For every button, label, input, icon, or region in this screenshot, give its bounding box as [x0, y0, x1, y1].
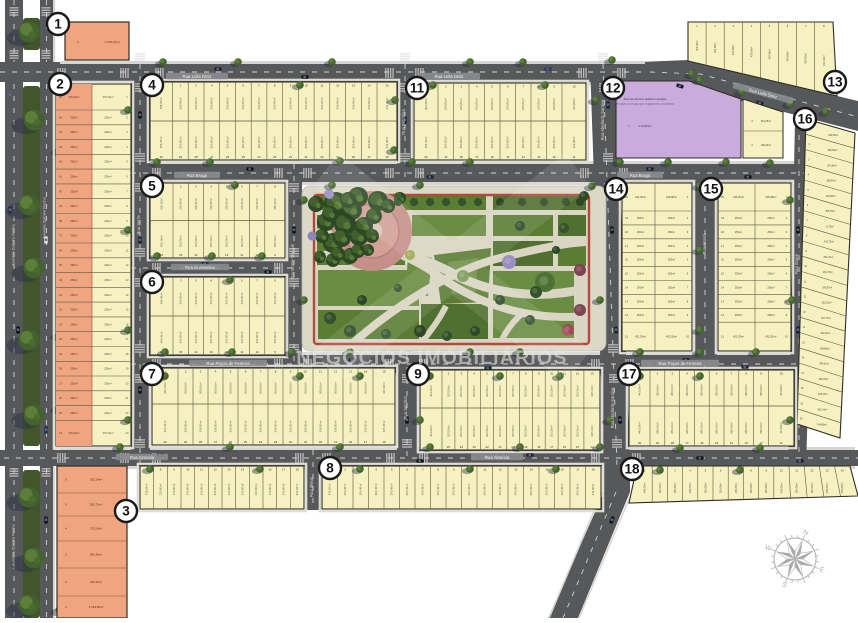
svg-text:200m²: 200m² — [104, 145, 111, 149]
svg-text:744,86m²: 744,86m² — [817, 424, 827, 427]
svg-text:250m²: 250m² — [637, 272, 644, 276]
svg-text:200,81m²: 200,81m² — [490, 98, 494, 110]
svg-text:200,00m²: 200,00m² — [194, 98, 198, 110]
svg-text:Rua Serra: Rua Serra — [136, 215, 141, 235]
svg-text:405,00m²: 405,00m² — [273, 198, 277, 210]
svg-text:200m²: 200m² — [104, 248, 111, 252]
svg-text:17: 17 — [475, 155, 479, 159]
svg-text:24: 24 — [257, 155, 261, 159]
svg-text:Rua Almeida: Rua Almeida — [485, 455, 510, 460]
svg-text:13: 13 — [537, 155, 541, 159]
svg-text:452,92m²: 452,92m² — [766, 335, 777, 339]
svg-text:300,45m²: 300,45m² — [529, 484, 533, 496]
svg-text:202,50m²: 202,50m² — [194, 235, 198, 247]
svg-text:Avenida Zulmira Rocha: Avenida Zulmira Rocha — [42, 196, 47, 238]
svg-text:250m²: 250m² — [735, 230, 742, 234]
svg-text:13: 13 — [590, 371, 594, 375]
svg-text:409,98m²: 409,98m² — [769, 49, 772, 60]
svg-text:208,00m²: 208,00m² — [198, 421, 202, 433]
svg-text:250m²: 250m² — [70, 396, 77, 400]
svg-text:208,00m²: 208,00m² — [198, 382, 202, 394]
svg-text:202,50m²: 202,50m² — [575, 385, 579, 397]
svg-text:310,80m²: 310,80m² — [254, 484, 258, 496]
svg-text:250m²: 250m² — [70, 204, 77, 208]
svg-text:251,73m²: 251,73m² — [824, 256, 834, 259]
svg-text:250m²: 250m² — [767, 285, 774, 289]
svg-text:250m²: 250m² — [70, 337, 77, 341]
svg-text:250m²: 250m² — [767, 216, 774, 220]
svg-text:208,00m²: 208,00m² — [333, 382, 337, 394]
svg-text:405,00m²: 405,00m² — [273, 332, 277, 344]
svg-text:200,00m²: 200,00m² — [273, 137, 277, 149]
svg-text:200,00m²: 200,00m² — [304, 137, 308, 149]
svg-text:202,50m²: 202,50m² — [225, 332, 229, 344]
svg-text:200m²: 200m² — [104, 234, 111, 238]
svg-text:250m²: 250m² — [70, 411, 77, 415]
svg-text:17: 17 — [685, 441, 689, 445]
svg-text:436,85m²: 436,85m² — [735, 483, 738, 494]
svg-text:15: 15 — [576, 445, 580, 449]
svg-text:250m²: 250m² — [70, 352, 77, 356]
svg-text:265,68m²: 265,68m² — [811, 483, 814, 494]
svg-text:310,80m²: 310,80m² — [268, 484, 272, 496]
svg-text:200,00m²: 200,00m² — [178, 98, 182, 110]
svg-text:250m²: 250m² — [70, 308, 77, 312]
svg-text:409,98m²: 409,98m² — [750, 46, 753, 57]
svg-text:409,98m²: 409,98m² — [787, 51, 790, 62]
svg-text:250m²: 250m² — [668, 258, 675, 262]
svg-text:200,81m²: 200,81m² — [490, 137, 494, 149]
svg-text:262,21m²: 262,21m² — [822, 302, 832, 305]
svg-text:436,85m²: 436,85m² — [780, 483, 783, 494]
svg-text:202,50m²: 202,50m² — [537, 385, 541, 397]
svg-text:300,45m²: 300,45m² — [452, 484, 456, 496]
svg-text:409,98m²: 409,98m² — [732, 44, 735, 55]
svg-text:Rua Paços de Ferreira: Rua Paços de Ferreira — [658, 361, 702, 366]
svg-text:208,00m²: 208,00m² — [288, 421, 292, 433]
svg-text:280,00m²: 280,00m² — [700, 384, 704, 396]
svg-text:433,68m²: 433,68m² — [766, 195, 777, 199]
svg-text:262,16m²: 262,16m² — [821, 332, 831, 335]
svg-text:443,69m²: 443,69m² — [637, 384, 641, 396]
svg-text:436,85m²: 436,85m² — [689, 483, 692, 494]
svg-text:250m²: 250m² — [767, 272, 774, 276]
svg-text:250m²: 250m² — [767, 299, 774, 303]
svg-text:17: 17 — [576, 467, 580, 471]
svg-text:310,80m²: 310,80m² — [172, 484, 176, 496]
svg-text:300,45m²: 300,45m² — [560, 484, 564, 496]
svg-text:404,46m²: 404,46m² — [424, 98, 428, 110]
svg-text:15: 15 — [385, 83, 389, 87]
svg-text:202,50m²: 202,50m² — [225, 198, 229, 210]
svg-text:Avenida Zulmira Rocha: Avenida Zulmira Rocha — [11, 523, 16, 565]
svg-text:1.170m²: 1.170m² — [825, 225, 834, 228]
svg-text:202,50m²: 202,50m² — [459, 425, 463, 437]
svg-text:200,81m²: 200,81m² — [537, 98, 541, 110]
svg-text:3: 3 — [122, 504, 130, 519]
svg-text:29: 29 — [184, 440, 188, 444]
svg-text:250m²: 250m² — [735, 299, 742, 303]
svg-text:250m²: 250m² — [70, 115, 77, 119]
svg-text:202,50m²: 202,50m² — [550, 425, 554, 437]
svg-text:280,00m²: 280,00m² — [744, 384, 748, 396]
svg-text:2: 2 — [56, 77, 64, 92]
svg-text:10: 10 — [780, 469, 783, 473]
svg-text:300,45m²: 300,45m² — [359, 484, 363, 496]
svg-text:1: 1 — [54, 17, 62, 32]
svg-text:Avenida Zulmira Rocha: Avenida Zulmira Rocha — [11, 223, 16, 265]
svg-text:421,88m²: 421,88m² — [779, 384, 783, 396]
svg-text:14: 14 — [841, 469, 844, 473]
svg-text:247,77m²: 247,77m² — [821, 317, 831, 320]
svg-text:200m²: 200m² — [104, 308, 111, 312]
svg-text:404,46m²: 404,46m² — [429, 425, 433, 437]
svg-text:433,68m²: 433,68m² — [666, 195, 677, 199]
svg-text:202,50m²: 202,50m² — [240, 235, 244, 247]
svg-text:14: 14 — [608, 182, 624, 197]
svg-text:280,00m²: 280,00m² — [715, 384, 719, 396]
svg-text:250m²: 250m² — [70, 248, 77, 252]
svg-text:16: 16 — [382, 440, 386, 444]
svg-text:250m²: 250m² — [668, 299, 675, 303]
svg-text:26: 26 — [226, 155, 230, 159]
svg-text:288,97m²: 288,97m² — [827, 180, 837, 183]
svg-text:1.163,89m²: 1.163,89m² — [89, 605, 104, 609]
svg-text:19: 19 — [656, 441, 660, 445]
svg-text:200,00m²: 200,00m² — [367, 98, 371, 110]
svg-text:300,45m²: 300,45m² — [498, 484, 502, 496]
svg-text:291,08m²: 291,08m² — [828, 134, 838, 137]
svg-text:13: 13 — [827, 75, 843, 90]
svg-text:20: 20 — [424, 155, 428, 159]
svg-text:300,45m²: 300,45m² — [421, 484, 425, 496]
svg-text:202,50m²: 202,50m² — [255, 332, 259, 344]
svg-text:Rua Monte Mor Ipê: Rua Monte Mor Ipê — [290, 243, 295, 280]
svg-text:300,45m²: 300,45m² — [467, 484, 471, 496]
svg-text:200m²: 200m² — [104, 175, 111, 179]
svg-text:532,14m²: 532,14m² — [90, 478, 102, 482]
svg-text:250m²: 250m² — [668, 244, 675, 248]
svg-text:Rua Soure: Rua Soure — [794, 253, 799, 274]
svg-text:200,00m²: 200,00m² — [320, 137, 324, 149]
svg-text:250m²: 250m² — [637, 244, 644, 248]
svg-text:12: 12 — [605, 81, 620, 96]
svg-text:261,14m²: 261,14m² — [818, 408, 828, 411]
svg-text:18: 18 — [537, 445, 541, 449]
svg-text:208,00m²: 208,00m² — [363, 421, 367, 433]
svg-text:10: 10 — [304, 369, 308, 373]
svg-text:250m²: 250m² — [637, 258, 644, 262]
svg-text:409,98m²: 409,98m² — [805, 53, 808, 64]
svg-text:5: 5 — [148, 179, 156, 194]
svg-text:300,45m²: 300,45m² — [436, 484, 440, 496]
svg-text:202,50m²: 202,50m² — [511, 385, 515, 397]
svg-text:200,81m²: 200,81m² — [521, 137, 525, 149]
svg-text:200,00m²: 200,00m² — [367, 137, 371, 149]
svg-text:280,00m²: 280,00m² — [759, 422, 763, 434]
svg-text:434,25m²: 434,25m² — [733, 195, 744, 199]
svg-text:4: 4 — [148, 78, 156, 93]
svg-text:208,00m²: 208,00m² — [273, 421, 277, 433]
svg-text:14: 14 — [730, 441, 734, 445]
svg-text:202,50m²: 202,50m² — [209, 198, 213, 210]
svg-text:260,97m²: 260,97m² — [819, 378, 829, 381]
svg-text:16: 16 — [700, 441, 704, 445]
svg-text:243,87m²: 243,87m² — [822, 286, 832, 289]
svg-text:200m²: 200m² — [104, 263, 111, 267]
svg-text:29: 29 — [179, 155, 183, 159]
svg-text:18: 18 — [460, 155, 464, 159]
svg-text:16: 16 — [563, 445, 567, 449]
svg-text:200,81m²: 200,81m² — [444, 137, 448, 149]
svg-text:202,50m²: 202,50m² — [485, 385, 489, 397]
svg-text:200,00m²: 200,00m² — [273, 98, 277, 110]
svg-text:8: 8 — [326, 461, 334, 476]
svg-text:300,45m²: 300,45m² — [514, 484, 518, 496]
svg-text:200m²: 200m² — [104, 293, 111, 297]
svg-text:280,00m²: 280,00m² — [715, 422, 719, 434]
svg-text:202,50m²: 202,50m² — [209, 293, 213, 305]
svg-text:200,81m²: 200,81m² — [459, 98, 463, 110]
svg-text:11: 11 — [483, 467, 486, 471]
svg-text:250m²: 250m² — [70, 175, 77, 179]
svg-text:208,00m²: 208,00m² — [303, 421, 307, 433]
svg-text:208,00m²: 208,00m² — [213, 421, 217, 433]
svg-text:25: 25 — [242, 155, 246, 159]
svg-text:23: 23 — [274, 440, 278, 444]
svg-text:202,50m²: 202,50m² — [240, 198, 244, 210]
svg-text:202,50m²: 202,50m² — [240, 293, 244, 305]
svg-text:14: 14 — [194, 350, 198, 354]
svg-text:14: 14 — [364, 369, 368, 373]
svg-text:250m²: 250m² — [735, 313, 742, 317]
svg-text:265,68m²: 265,68m² — [750, 483, 753, 494]
svg-text:200,00m²: 200,00m² — [241, 137, 245, 149]
svg-text:443,69m²: 443,69m² — [637, 422, 641, 434]
svg-text:421,53m²: 421,53m² — [733, 335, 744, 339]
svg-text:22: 22 — [485, 445, 489, 449]
svg-text:200,00m²: 200,00m² — [210, 98, 214, 110]
svg-text:300,45m²: 300,45m² — [374, 484, 378, 496]
svg-text:200,00m²: 200,00m² — [226, 137, 230, 149]
svg-text:280,00m²: 280,00m² — [685, 422, 689, 434]
svg-text:310,80m²: 310,80m² — [281, 484, 285, 496]
svg-text:1.248,44m²: 1.248,44m² — [104, 40, 119, 44]
svg-text:202,50m²: 202,50m² — [537, 425, 541, 437]
svg-text:458,78m²: 458,78m² — [159, 98, 163, 110]
svg-text:286,65m²: 286,65m² — [828, 149, 838, 152]
svg-text:200,81m²: 200,81m² — [444, 98, 448, 110]
svg-text:200m²: 200m² — [104, 115, 111, 119]
svg-text:266,86m²: 266,86m² — [820, 347, 830, 350]
svg-text:12: 12 — [336, 83, 340, 87]
svg-text:Rua Braga: Rua Braga — [630, 173, 651, 178]
svg-text:208,00m²: 208,00m² — [318, 382, 322, 394]
svg-text:200m²: 200m² — [104, 130, 111, 134]
svg-text:11: 11 — [572, 155, 575, 159]
svg-text:30: 30 — [163, 440, 167, 444]
svg-text:16: 16 — [268, 467, 272, 471]
svg-text:208,00m²: 208,00m² — [348, 421, 352, 433]
svg-text:24: 24 — [259, 440, 263, 444]
svg-text:202,50m²: 202,50m² — [240, 332, 244, 344]
svg-text:202,50m²: 202,50m² — [524, 425, 528, 437]
svg-text:208,00m²: 208,00m² — [348, 382, 352, 394]
svg-text:200,00m²: 200,00m² — [178, 137, 182, 149]
svg-text:11: 11 — [780, 441, 783, 445]
svg-text:404,46m²: 404,46m² — [429, 385, 433, 397]
svg-text:200m²: 200m² — [104, 219, 111, 223]
svg-text:25: 25 — [447, 445, 451, 449]
svg-text:312,65m²: 312,65m² — [295, 484, 299, 496]
svg-text:250m²: 250m² — [637, 230, 644, 234]
svg-text:410,44m²: 410,44m² — [163, 382, 167, 394]
svg-text:22: 22 — [289, 155, 293, 159]
svg-text:19: 19 — [524, 445, 528, 449]
svg-text:16: 16 — [385, 155, 389, 159]
svg-text:414,88m²: 414,88m² — [572, 137, 576, 149]
svg-text:12: 12 — [499, 467, 503, 471]
svg-text:265,68m²: 265,68m² — [841, 483, 844, 494]
svg-text:300,45m²: 300,45m² — [576, 484, 580, 496]
svg-text:208,00m²: 208,00m² — [243, 382, 247, 394]
svg-text:24: 24 — [460, 445, 464, 449]
svg-text:202,50m²: 202,50m² — [575, 425, 579, 437]
svg-text:208,00m²: 208,00m² — [258, 421, 262, 433]
svg-text:375,26m²: 375,26m² — [90, 527, 102, 531]
svg-text:Rua Leila Diniz: Rua Leila Diniz — [183, 74, 212, 79]
svg-text:208,00m²: 208,00m² — [228, 382, 232, 394]
svg-text:250m²: 250m² — [70, 219, 77, 223]
svg-text:202,50m²: 202,50m² — [550, 385, 554, 397]
svg-text:561,35m²: 561,35m² — [761, 120, 771, 123]
svg-text:250m²: 250m² — [637, 313, 644, 317]
svg-text:202,50m²: 202,50m² — [472, 425, 476, 437]
svg-text:200,81m²: 200,81m² — [475, 98, 479, 110]
svg-text:14: 14 — [522, 155, 526, 159]
svg-text:14: 14 — [241, 467, 245, 471]
svg-text:310,80m²: 310,80m² — [240, 484, 244, 496]
svg-text:208,00m²: 208,00m² — [243, 421, 247, 433]
svg-text:200m²: 200m² — [104, 381, 111, 385]
svg-text:12: 12 — [225, 253, 229, 257]
svg-text:470,44m²: 470,44m² — [69, 431, 80, 435]
svg-text:250m²: 250m² — [735, 272, 742, 276]
svg-text:200m²: 200m² — [104, 204, 111, 208]
svg-text:200,00m²: 200,00m² — [257, 137, 261, 149]
svg-text:208,00m²: 208,00m² — [183, 382, 187, 394]
svg-text:411,90m²: 411,90m² — [591, 484, 595, 496]
svg-text:18: 18 — [592, 467, 596, 471]
svg-text:436,85m²: 436,85m² — [644, 483, 647, 494]
svg-text:300,45m²: 300,45m² — [405, 484, 409, 496]
svg-text:15: 15 — [179, 253, 183, 257]
svg-text:208,00m²: 208,00m² — [363, 382, 367, 394]
svg-text:250m²: 250m² — [637, 299, 644, 303]
svg-text:200,00m²: 200,00m² — [241, 98, 245, 110]
svg-text:250m²: 250m² — [70, 145, 77, 149]
svg-text:200m²: 200m² — [104, 322, 111, 326]
svg-text:310,80m²: 310,80m² — [227, 484, 231, 496]
svg-text:411,38m²: 411,38m² — [385, 137, 389, 149]
svg-text:300,45m²: 300,45m² — [545, 484, 549, 496]
svg-text:267,94m²: 267,94m² — [827, 164, 837, 167]
svg-text:200,00m²: 200,00m² — [226, 98, 230, 110]
svg-text:409,98m²: 409,98m² — [696, 40, 699, 51]
svg-text:280,00m²: 280,00m² — [729, 384, 733, 396]
svg-text:250m²: 250m² — [668, 313, 675, 317]
svg-text:405,00m²: 405,00m² — [273, 235, 277, 247]
svg-text:200m²: 200m² — [104, 352, 111, 356]
svg-text:23: 23 — [473, 445, 477, 449]
svg-text:202,50m²: 202,50m² — [446, 425, 450, 437]
svg-text:13: 13 — [352, 83, 356, 87]
svg-text:436,85m²: 436,85m² — [826, 483, 829, 494]
svg-text:11: 11 — [240, 253, 243, 257]
svg-text:409,98m²: 409,98m² — [714, 42, 717, 53]
svg-text:421,53m²: 421,53m² — [635, 335, 646, 339]
svg-text:200,81m²: 200,81m² — [506, 98, 510, 110]
svg-text:6: 6 — [148, 275, 156, 290]
svg-text:265,68m²: 265,68m² — [674, 483, 677, 494]
svg-text:13: 13 — [227, 467, 231, 471]
svg-text:250m²: 250m² — [735, 285, 742, 289]
svg-text:250m²: 250m² — [70, 381, 77, 385]
svg-text:18: 18 — [624, 462, 640, 477]
svg-text:404,46m²: 404,46m² — [159, 332, 163, 344]
svg-text:17: 17 — [364, 440, 368, 444]
svg-text:300,45m²: 300,45m² — [483, 484, 487, 496]
svg-text:250m²: 250m² — [70, 189, 77, 193]
svg-text:291,08m²: 291,08m² — [826, 195, 836, 198]
svg-text:415,38m²: 415,38m² — [382, 421, 386, 433]
svg-text:310,80m²: 310,80m² — [199, 484, 203, 496]
svg-text:264,61m²: 264,61m² — [819, 363, 829, 366]
svg-text:202,50m²: 202,50m² — [562, 425, 566, 437]
svg-text:250m²: 250m² — [637, 216, 644, 220]
svg-text:250m²: 250m² — [767, 313, 774, 317]
svg-text:Rua Abelardo Saraiva: Rua Abelardo Saraiva — [600, 99, 605, 140]
svg-text:280,00m²: 280,00m² — [655, 384, 659, 396]
svg-text:208,00m²: 208,00m² — [213, 382, 217, 394]
svg-text:202,50m²: 202,50m² — [511, 425, 515, 437]
svg-text:202,50m²: 202,50m² — [498, 385, 502, 397]
svg-text:28: 28 — [199, 440, 203, 444]
svg-text:202,50m²: 202,50m² — [446, 385, 450, 397]
svg-text:Rua Guimarães: Rua Guimarães — [185, 265, 215, 270]
svg-text:25: 25 — [244, 440, 248, 444]
svg-text:470,44m²: 470,44m² — [103, 95, 114, 99]
svg-text:Rua Braga: Rua Braga — [187, 173, 208, 178]
svg-text:10: 10 — [186, 467, 190, 471]
svg-text:280,00m²: 280,00m² — [670, 422, 674, 434]
svg-text:458,78m²: 458,78m² — [159, 137, 163, 149]
svg-text:310,80m²: 310,80m² — [186, 484, 190, 496]
svg-text:20: 20 — [638, 441, 642, 445]
svg-text:18: 18 — [349, 440, 353, 444]
svg-text:10: 10 — [572, 84, 576, 88]
svg-text:280,00m²: 280,00m² — [744, 422, 748, 434]
svg-text:20: 20 — [320, 155, 324, 159]
svg-text:11: 11 — [320, 83, 323, 87]
svg-text:30: 30 — [160, 155, 164, 159]
svg-text:265,68m²: 265,68m² — [659, 483, 662, 494]
svg-text:14: 14 — [367, 83, 371, 87]
svg-text:13: 13 — [745, 441, 749, 445]
svg-text:200,81m²: 200,81m² — [552, 98, 556, 110]
svg-text:200m²: 200m² — [104, 396, 111, 400]
svg-text:200m²: 200m² — [104, 278, 111, 282]
